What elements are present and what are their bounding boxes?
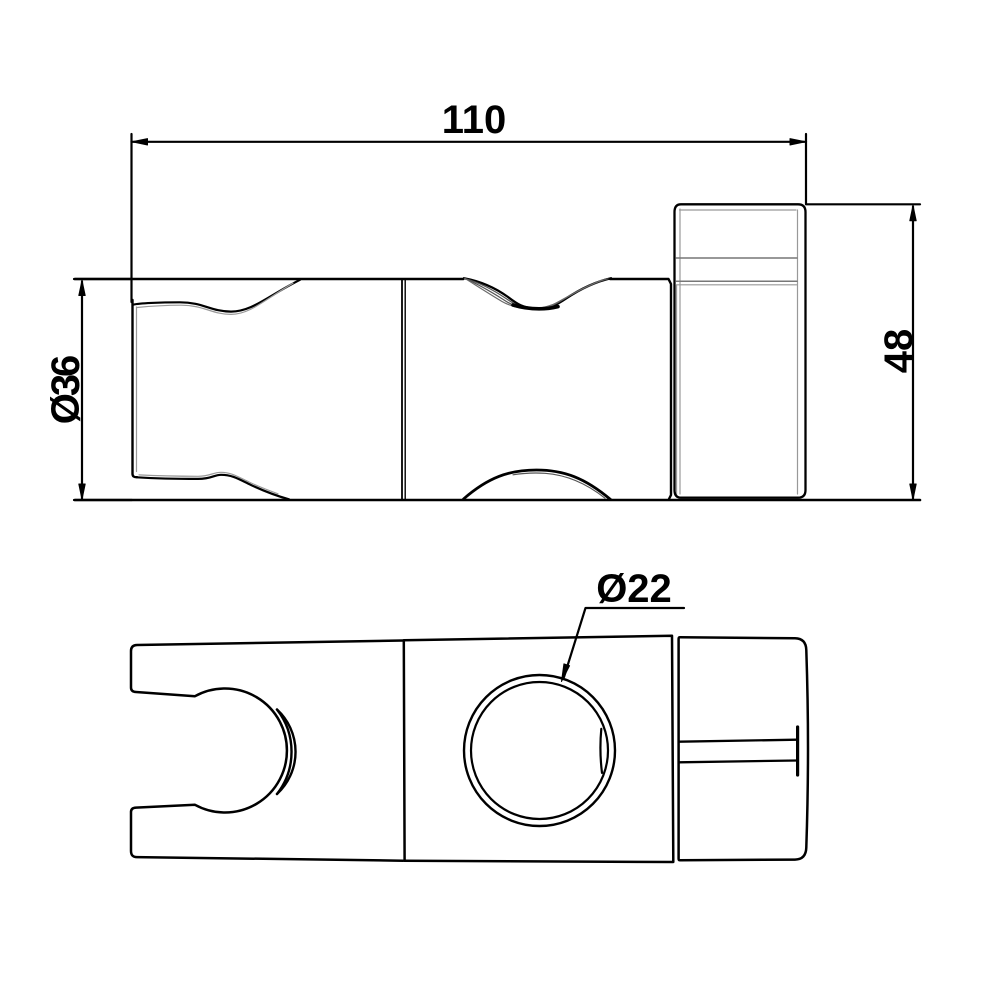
svg-text:Ø22: Ø22 [596, 567, 672, 611]
svg-text:Ø36: Ø36 [44, 356, 88, 424]
svg-text:110: 110 [442, 98, 507, 142]
svg-text:48: 48 [877, 329, 921, 374]
